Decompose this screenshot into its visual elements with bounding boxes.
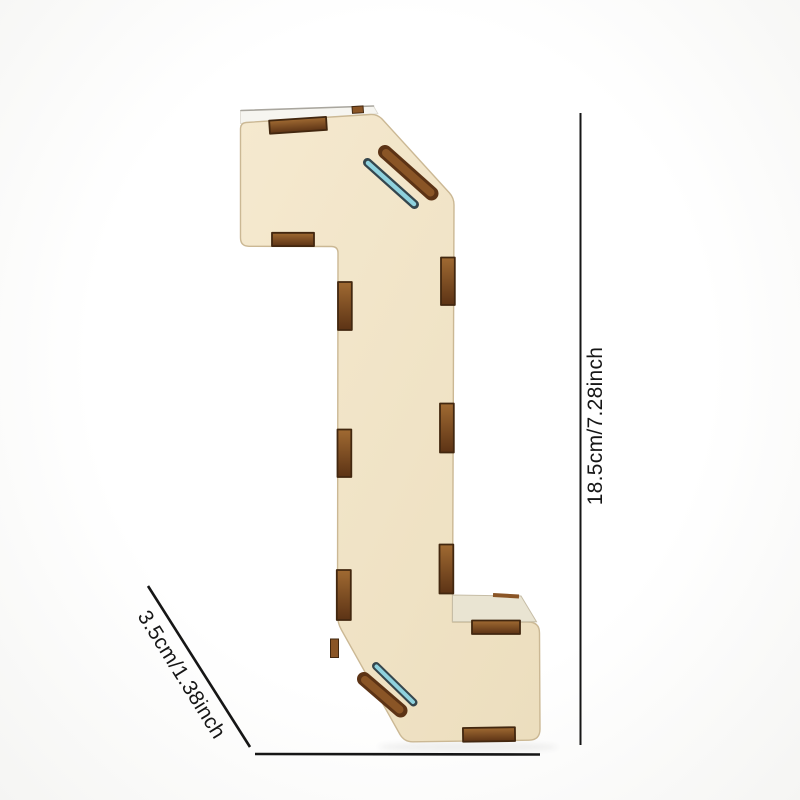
finger-slot-top-edge: [269, 117, 327, 134]
height-dimension-label: 18.5cm/7.28inch: [584, 347, 608, 506]
finger-tab-top: [352, 106, 364, 114]
finger-slot-base-bottom: [463, 727, 515, 742]
width-dimension-line: [255, 754, 540, 755]
ground-shadow: [378, 742, 558, 752]
finger-slot-flag-bottom: [272, 233, 314, 246]
finger-slot-right-2: [440, 404, 454, 453]
front-panel: [241, 114, 541, 741]
finger-slot-left-2: [338, 430, 352, 478]
finger-slot-left-1: [338, 282, 352, 330]
finger-slot-left-3: [337, 570, 351, 620]
finger-slot-right-3: [440, 545, 454, 594]
finger-slot-right-1: [441, 258, 455, 306]
base-top-panel: [453, 595, 537, 622]
product-photo: 18.5cm/7.28inch 3.5cm/1.38inch: [0, 0, 800, 800]
finger-tab-left: [331, 639, 339, 658]
wooden-number-1-illustration: [0, 0, 800, 800]
finger-slot-base-notch: [472, 621, 520, 635]
base-top-joint-slot: [493, 595, 519, 597]
